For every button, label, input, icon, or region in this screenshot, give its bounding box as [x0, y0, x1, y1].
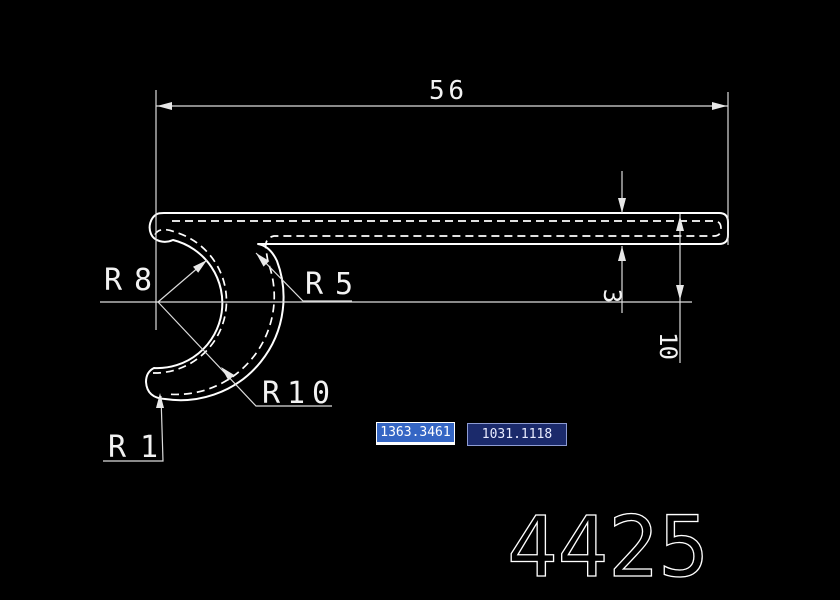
cad-viewport: 56 R8 R5 R10 R1	[0, 0, 840, 600]
profile-inner-dashed-line-2	[153, 230, 226, 373]
dimension-r1[interactable]: R1	[103, 393, 164, 465]
dimension-offset[interactable]: 10	[654, 214, 684, 363]
arrowhead-up	[676, 216, 684, 231]
r10-label: R10	[262, 376, 330, 411]
dynamic-input-y-value[interactable]: 1031.1118	[482, 427, 552, 442]
dynamic-input-y-field[interactable]: 1031.1118	[467, 423, 567, 446]
part-number-text[interactable]: 4425	[507, 498, 709, 596]
dim-offset-label: 10	[654, 332, 682, 360]
arrowhead	[156, 393, 164, 408]
arrowhead-down	[618, 198, 626, 213]
dim-width-label: 56	[429, 76, 464, 106]
arrowhead-down	[676, 285, 684, 300]
leader-line	[158, 302, 332, 406]
cad-canvas: 56 R8 R5 R10 R1	[0, 0, 840, 600]
arrowhead-right	[712, 102, 727, 110]
r8-label: R8	[104, 263, 152, 298]
dimension-width[interactable]: 56	[156, 76, 728, 330]
dynamic-input-x-value[interactable]: 1363.3461	[377, 423, 454, 442]
arrowhead	[218, 364, 234, 380]
profile-inner-dashed-line	[167, 221, 721, 394]
profile-outline[interactable]	[146, 213, 728, 400]
r5-label: R5	[305, 267, 353, 302]
r1-label: R1	[108, 430, 158, 465]
dynamic-input-x-field[interactable]: 1363.3461	[376, 422, 455, 445]
arrowhead-up	[618, 246, 626, 261]
dimension-r8[interactable]: R8	[104, 257, 210, 302]
dim-thickness-label: 3	[598, 289, 626, 303]
dimension-thickness[interactable]: 3	[598, 171, 626, 313]
profile-geometry[interactable]	[146, 213, 728, 400]
arrowhead-left	[157, 102, 172, 110]
